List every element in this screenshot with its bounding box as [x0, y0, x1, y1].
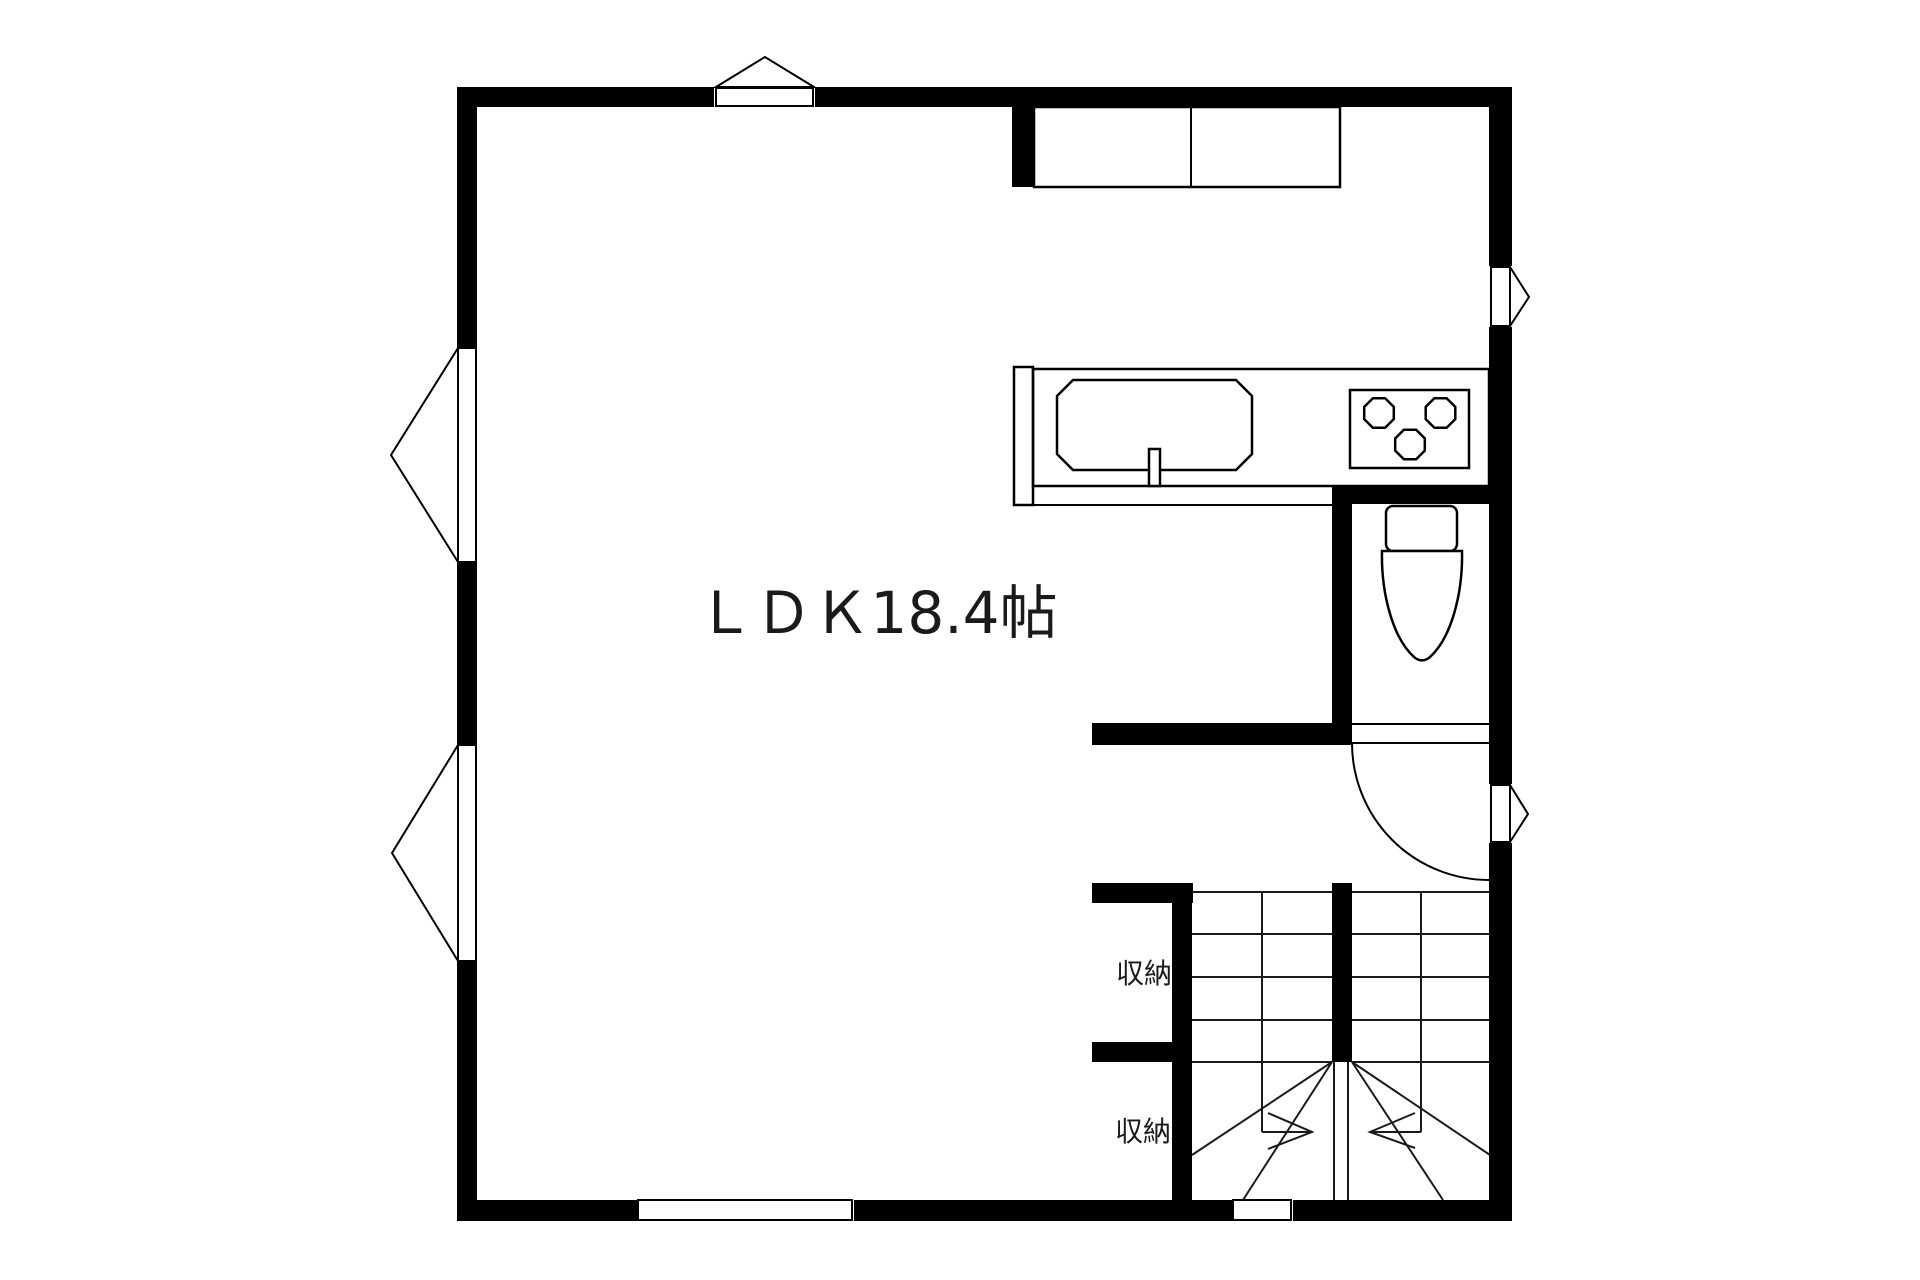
cabinet-outline — [1034, 107, 1340, 187]
outer-walls — [457, 87, 1512, 1221]
wall-bottom — [457, 1200, 1512, 1221]
wall-kitchen-toilet — [1332, 486, 1489, 504]
window-frame — [638, 1200, 852, 1220]
toilet-bowl — [1382, 551, 1462, 660]
window-frame — [1491, 785, 1510, 842]
stair-winder-line — [1352, 1062, 1443, 1200]
ldk-room-label: ＬＤＫ18.4帖 — [696, 579, 1057, 647]
bottom-stair-opening — [1233, 1200, 1291, 1220]
wall-top — [457, 87, 1512, 107]
wall-cabinet-icon — [1034, 107, 1340, 187]
stair-winder-line — [1243, 1062, 1332, 1200]
window-swing-triangle-icon — [1510, 267, 1529, 326]
toilet-door — [1352, 724, 1489, 880]
burner-bottom-center — [1395, 430, 1425, 460]
right-casement-window-lower — [1491, 785, 1528, 842]
top-casement-window — [716, 57, 814, 106]
wall-left — [457, 87, 477, 1221]
burner-top-left — [1364, 398, 1394, 428]
door-swing-arc-icon — [1352, 743, 1489, 880]
floor-plan-canvas: ＬＤＫ18.4帖 収納 収納 — [0, 0, 1920, 1280]
toilet-icon — [1382, 506, 1462, 660]
window-swing-triangle-icon — [392, 745, 458, 961]
kitchen-sink-icon — [1057, 380, 1252, 486]
storage-upper-label: 収納 — [1116, 957, 1172, 990]
wall-storage-right — [1172, 883, 1192, 1220]
window-frame — [1491, 267, 1510, 326]
floor-plan-drawing: ＬＤＫ18.4帖 収納 収納 — [0, 0, 1920, 1280]
interior-walls — [1012, 107, 1489, 1220]
burner-top-right — [1426, 398, 1456, 428]
window-frame — [458, 745, 476, 961]
opening-frame — [1233, 1200, 1291, 1220]
window-swing-triangle-icon — [1510, 785, 1528, 842]
right-casement-window-upper — [1491, 267, 1529, 326]
left-casement-window-lower — [392, 745, 476, 961]
wall-storage-divider — [1092, 1042, 1173, 1062]
storage-lower-label: 収納 — [1115, 1115, 1171, 1148]
wall-stub-cabinet — [1012, 107, 1034, 187]
wall-toilet-left — [1332, 503, 1352, 745]
gas-stove-three-burner-icon — [1350, 390, 1469, 468]
toilet-tank — [1386, 506, 1457, 551]
wall-openings — [456, 86, 1513, 1222]
window-swing-triangle-icon — [391, 348, 458, 562]
window-swing-triangle-icon — [716, 57, 814, 87]
counter-end-panel — [1014, 367, 1033, 505]
bottom-sliding-window — [638, 1200, 852, 1220]
wall-hallway — [1092, 723, 1352, 745]
left-casement-window-upper — [391, 348, 476, 562]
stair-direction-arrow-icon — [1370, 1113, 1415, 1148]
faucet-icon — [1149, 449, 1160, 486]
wall-right — [1489, 87, 1512, 1221]
wall-stairs-center — [1332, 883, 1352, 1062]
window-frame — [716, 88, 813, 106]
window-frame — [458, 348, 476, 562]
